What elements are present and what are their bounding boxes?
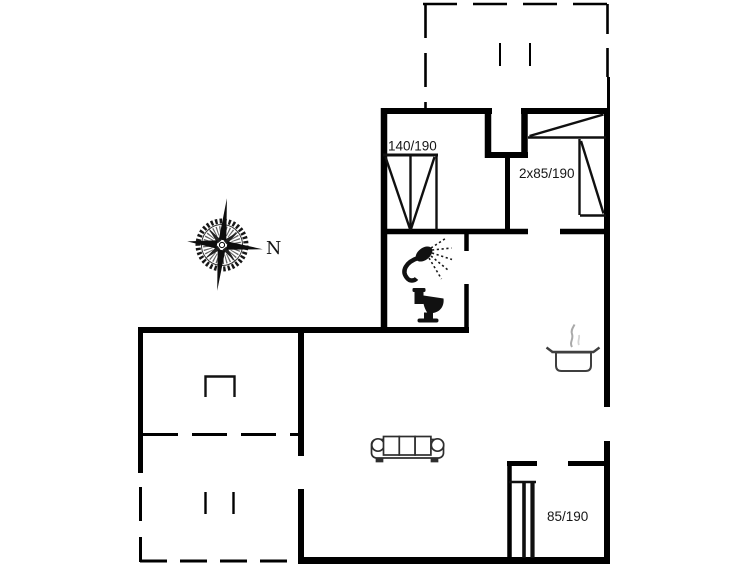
- compass-north-label: N: [266, 239, 281, 259]
- sofa-cushion: [415, 437, 431, 456]
- shower-spray: [429, 238, 452, 280]
- steam-wisp: [571, 325, 574, 348]
- sofa-armrest: [431, 439, 443, 451]
- toilet-foot: [418, 319, 439, 323]
- steam-wisp: [578, 335, 579, 345]
- sofa-icon: [372, 437, 444, 462]
- north-terrace-opening-ticks: [500, 43, 530, 66]
- floorplan-drawing: N 140/190 2x85/190 85/190: [0, 0, 755, 566]
- bed-diagonal: [530, 115, 604, 137]
- west-terrace-opening-ticks: [206, 492, 234, 514]
- west-terrace-outline: [140, 435, 298, 563]
- toilet-icon: [413, 288, 444, 323]
- bed-size-label-bedroom2: 2x85/190: [519, 166, 575, 181]
- double-bed-icon: [383, 155, 438, 230]
- stove-outline: [206, 377, 235, 398]
- floorplan-page: N 140/190 2x85/190 85/190: [0, 0, 755, 566]
- toilet-bowl: [423, 296, 443, 314]
- toilet-pedestal: [424, 313, 433, 319]
- bed-diagonal: [581, 141, 604, 214]
- pot-handle: [547, 348, 553, 353]
- bed-size-label-bedroom3: 85/190: [547, 509, 588, 524]
- compass-rose-icon: [182, 195, 267, 295]
- sofa-cushion: [399, 437, 415, 456]
- pot-body: [556, 353, 591, 372]
- wood-stove-icon: [206, 377, 235, 398]
- sofa-cushion: [384, 437, 400, 456]
- compass-hub: [219, 242, 225, 248]
- north-terrace-outline: [423, 4, 609, 108]
- toilet-lid: [413, 288, 426, 292]
- bed-size-label-bedroom1: 140/190: [388, 139, 437, 154]
- toilet-tank: [415, 292, 424, 304]
- single-bed-icon: [509, 482, 536, 558]
- shower-icon: [404, 238, 452, 281]
- shower-hose: [404, 258, 418, 281]
- cooking-pot-icon: [547, 325, 600, 372]
- pot-handle: [594, 348, 600, 353]
- sofa-armrest: [372, 439, 384, 451]
- bed-diagonal: [411, 157, 435, 229]
- bed-diagonal: [386, 157, 411, 229]
- twin-beds-icon: [528, 115, 606, 216]
